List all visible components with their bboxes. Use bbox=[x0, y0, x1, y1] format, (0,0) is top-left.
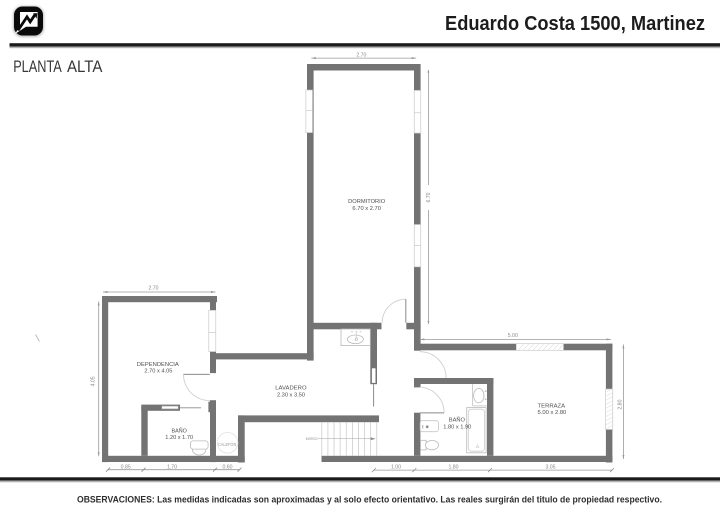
svg-text:3.05: 3.05 bbox=[545, 464, 555, 470]
svg-text:2.80: 2.80 bbox=[618, 399, 624, 409]
svg-text:4.05: 4.05 bbox=[90, 376, 96, 386]
svg-text:TERRAZA: TERRAZA bbox=[538, 404, 566, 410]
svg-text:1.20 x 1.70: 1.20 x 1.70 bbox=[165, 435, 193, 441]
svg-text:2.70: 2.70 bbox=[148, 285, 158, 291]
svg-text:ALTA: ALTA bbox=[67, 58, 103, 76]
svg-text:Eduardo Costa 1500, Martinez: Eduardo Costa 1500, Martinez bbox=[445, 13, 705, 35]
svg-text:BAÑO: BAÑO bbox=[449, 417, 466, 424]
svg-text:2.70: 2.70 bbox=[356, 52, 366, 58]
svg-text:6.70 x 2.70: 6.70 x 2.70 bbox=[352, 206, 381, 212]
svg-text:5.00 x 2.80: 5.00 x 2.80 bbox=[538, 410, 567, 416]
svg-text:6.70: 6.70 bbox=[426, 192, 432, 202]
svg-text:1.80 x 1.90: 1.80 x 1.90 bbox=[443, 425, 471, 431]
svg-text:BAÑO: BAÑO bbox=[172, 427, 188, 434]
svg-text:2.30 x 3.50: 2.30 x 3.50 bbox=[277, 392, 305, 398]
svg-text:DEPENDENCIA: DEPENDENCIA bbox=[137, 362, 179, 368]
svg-text:1.70: 1.70 bbox=[167, 464, 177, 470]
svg-text:DORMITORIO: DORMITORIO bbox=[348, 199, 386, 205]
svg-text:1.00: 1.00 bbox=[391, 464, 401, 470]
svg-text:INGRESO: INGRESO bbox=[306, 437, 318, 441]
svg-text:2.70 x 4.05: 2.70 x 4.05 bbox=[144, 369, 172, 375]
svg-text:5.00: 5.00 bbox=[508, 333, 518, 339]
svg-text:0.85: 0.85 bbox=[121, 464, 131, 470]
svg-text:0.60: 0.60 bbox=[222, 464, 232, 470]
svg-text:CALEFÓN: CALEFÓN bbox=[218, 442, 236, 447]
svg-text:PLANTA: PLANTA bbox=[13, 58, 62, 76]
svg-text:1.80: 1.80 bbox=[448, 464, 458, 470]
svg-text:LAVADERO: LAVADERO bbox=[275, 385, 307, 391]
svg-text:OBSERVACIONES: Las medidas ind: OBSERVACIONES: Las medidas indicadas son… bbox=[77, 495, 662, 505]
